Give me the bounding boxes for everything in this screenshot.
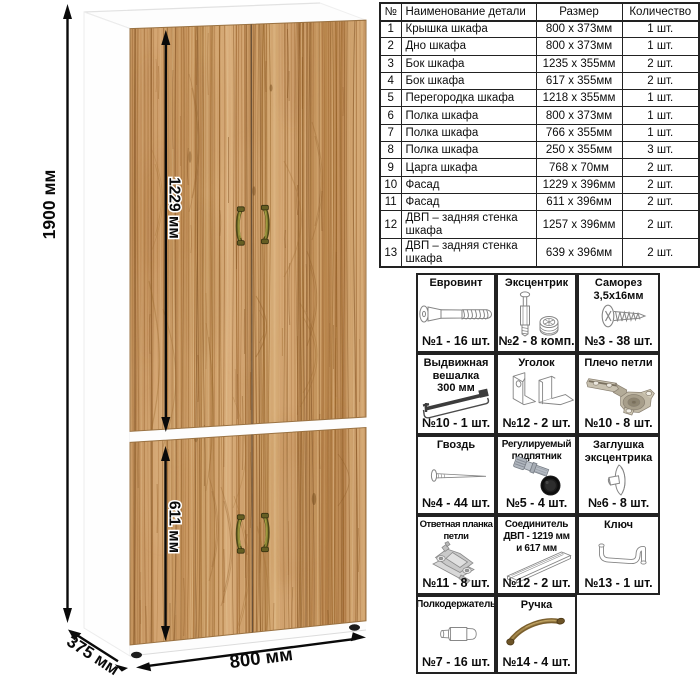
svg-text:800 мм: 800 мм <box>228 643 294 672</box>
svg-text:1900 мм: 1900 мм <box>39 170 59 240</box>
svg-text:1229 мм: 1229 мм <box>166 177 183 239</box>
svg-text:611 мм: 611 мм <box>166 501 183 553</box>
